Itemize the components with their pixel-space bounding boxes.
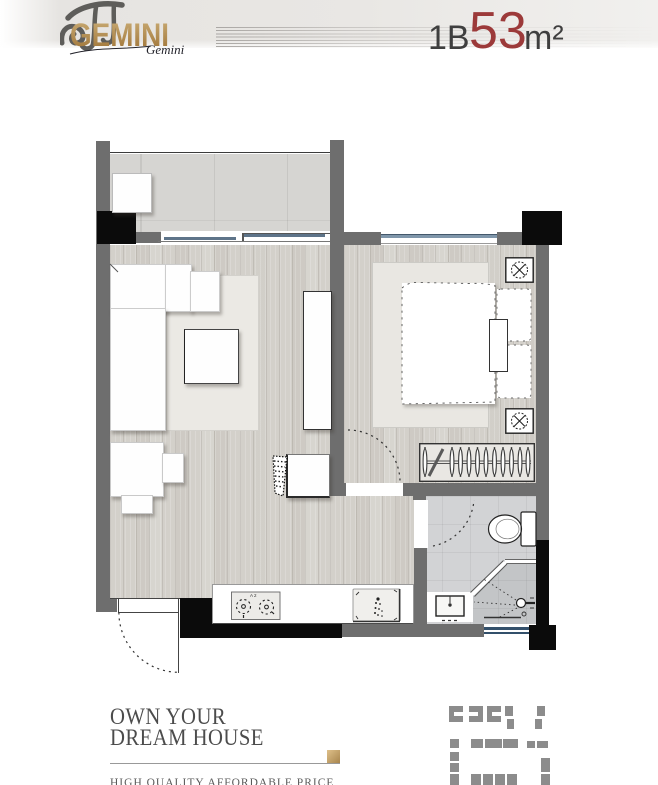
svg-text:A 2: A 2 bbox=[250, 593, 257, 598]
